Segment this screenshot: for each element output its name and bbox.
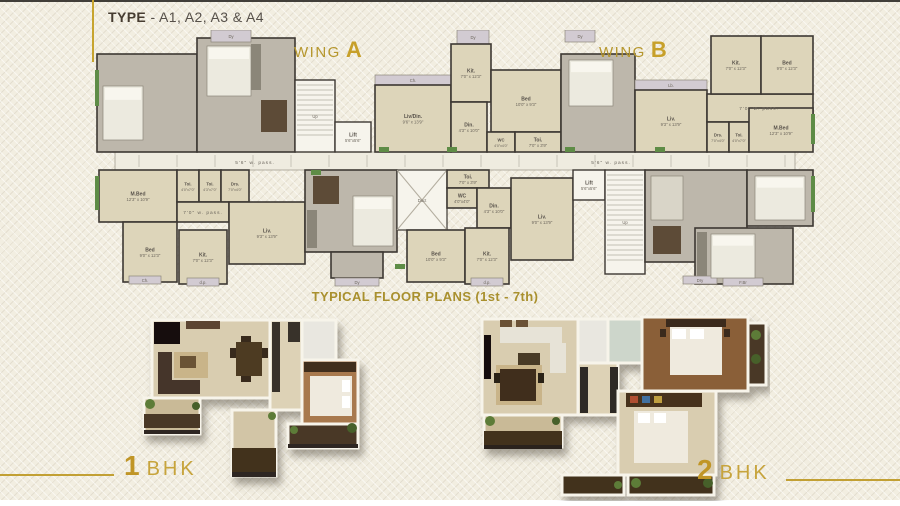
unit-2bhk-text: BHK [720,462,770,485]
shelf-box-icon [630,396,638,403]
room-label: 7'0" x 12'3" [477,257,498,262]
room-label: 5'6"x5'6" [345,138,361,143]
side-table-icon [660,329,666,337]
passage-label: 7'0" w. pass. [739,106,779,112]
room-label: Dy [577,34,583,39]
master-bedroom [642,317,748,391]
room-planter [311,170,321,175]
floor-plan-caption: TYPICAL FLOOR PLANS (1st - 7th) [255,289,595,304]
room-label: Duct [418,198,427,203]
room-planter [447,147,457,152]
room-label: Dy [470,35,476,40]
dining-table-icon [236,342,262,376]
wall-frame-icon [500,320,512,328]
bathroom [302,320,336,360]
deck-icon [144,414,200,428]
room-label: 7'0" x 12'3" [726,66,747,71]
pillow-icon [690,329,704,339]
coffee-table-icon [180,356,196,368]
passage-label: 5'6" w. pass. [235,160,275,166]
balcony-bottom-center [562,475,624,495]
room-label: 9'0" x 12'3" [140,253,161,258]
balcony-right [748,323,766,385]
unit-label-1bhk: 1 BHK [124,450,197,482]
counter-icon [272,322,280,392]
shelf-box-icon [654,396,662,403]
room-label: 7'0"x4'0" [228,188,242,192]
room-unit-furnished-a2 [331,252,383,278]
wing-a-prefix: WING [294,44,341,61]
pillow-icon [571,62,611,72]
plant-icon [192,402,200,410]
tv-panel-icon [484,335,491,379]
living-dining-room [152,320,270,398]
room-label: F.Br [739,280,747,285]
balcony-bottom-left [484,415,562,449]
passage-label: 7'0" w. pass. [183,210,223,216]
room-label: 9'3" x 13'9" [661,122,682,127]
wing-b-label: WING B [599,37,667,63]
room-label: 4'0"x7'0" [181,188,195,192]
wing-b-letter: B [651,37,667,63]
passage-label: 5'6" w. pass. [591,160,631,166]
room-label: Dry [697,278,704,283]
unit-label-2bhk: 2 BHK [697,454,770,486]
room-label: Up [622,220,628,225]
room-label: 7'0" x 3'9" [459,180,478,185]
room-planter [565,147,575,152]
sofa-icon [550,343,566,373]
pillow-icon [355,198,391,209]
room-label: 10'0" x 9'3" [426,257,447,262]
unit-2bhk-number: 2 [697,454,713,486]
room-label: 7'0" x 12'3" [461,74,482,79]
room-planter [379,147,389,152]
plant-icon [347,423,357,433]
room-table-icon [261,100,287,132]
room-label: Dy [228,34,234,39]
bathroom [578,319,642,363]
pillow-icon [342,396,350,408]
plan-type-rest: - A1, A2, A3 & A4 [150,9,263,25]
room-planter [95,176,99,210]
pillow-icon [654,413,666,423]
room-sofa-icon [651,176,683,220]
balcony-right [288,423,358,448]
wardrobe-icon [304,362,356,372]
room-label: d.p. [200,280,207,285]
brochure-page: TYPE - A1, A2, A3 & A4 WING A WING B DyU… [0,0,900,500]
utility-balcony [232,410,276,477]
railing-icon [288,444,358,448]
room-label: 4'0"x7'0" [732,139,746,143]
unit-1bhk-number: 1 [124,450,140,482]
pillow-icon [672,329,686,339]
room-label: 4'0"x4'0" [454,199,470,204]
room-label: Lb. [668,83,674,88]
deck-icon [484,431,562,445]
wall-frame-icon [516,320,528,328]
shower-room [608,319,642,363]
gold-accent-bar [92,0,94,62]
plant-icon [614,481,622,489]
room-label: 4'3" x 10'0" [459,128,480,133]
wing-a-letter: A [346,37,362,63]
pillow-icon [209,48,249,59]
plant-icon [290,426,298,434]
plant-icon [552,417,560,425]
room-label: 10'0" x 9'3" [516,102,537,107]
pillow-icon [757,178,803,188]
room-label: Ch. [410,78,417,83]
room-label: Dy [354,280,360,285]
room-label: Up [312,114,318,119]
plant-icon [751,354,761,364]
room-planter [655,147,665,152]
kitchen [270,320,302,410]
balcony-left [144,398,200,434]
chair-icon [230,348,236,358]
room-label: Toi. [206,182,213,187]
room-label: Ch. [142,278,149,283]
room-planter [395,264,405,269]
plant-icon [268,412,276,420]
plant-icon [751,330,761,340]
room-label: 4'0"x4'0" [494,144,508,148]
sofa-icon [158,380,200,394]
plant-icon [145,399,155,409]
railing-icon [232,472,276,477]
plan-type-bold: TYPE [108,9,146,25]
top-border-line [0,0,900,2]
room-label: 9'0" x 13'9" [532,220,553,225]
chair-icon [241,336,251,342]
pillow-icon [105,88,141,100]
plant-icon [485,416,495,426]
room-label: 9'0" x 12'3" [777,66,798,71]
tv-panel-icon [154,322,180,344]
room-label: 7'0"x4'0" [711,139,725,143]
room-label: 12'3" x 10'9" [127,197,150,202]
unit-1bhk-text: BHK [147,458,197,481]
room-label: Toi. [735,133,742,138]
room-label: Drs. [231,182,239,187]
room-label: 9'6" x 13'9" [403,119,424,124]
room-table-icon [653,226,681,254]
counter-icon [580,367,588,413]
railing-icon [144,430,200,434]
room-label: d.p. [484,280,491,285]
room-label: 7'0" x 12'3" [193,258,214,263]
pillow-icon [713,236,753,246]
room-label: 5'6"x5'6" [581,186,597,191]
pillow-icon [638,413,650,423]
chair-icon [262,348,268,358]
coffee-table-icon [518,353,540,367]
typical-floor-plan: DyUpLift5'6"x5'6"Ch.Liv/Din.9'6" x 13'9"… [95,30,815,288]
leader-line-2bhk [786,479,900,481]
room-planter [811,176,815,212]
plan-type-title: TYPE - A1, A2, A3 & A4 [108,9,264,25]
railing-icon [484,445,562,449]
room-label: Toi. [184,182,191,187]
floor-plan-svg: DyUpLift5'6"x5'6"Ch.Liv/Din.9'6" x 13'9"… [95,30,815,288]
room-counter-icon [307,210,317,248]
room-table-icon [313,176,339,204]
dining-table-icon [500,369,536,401]
room-counter-icon [697,232,707,276]
room-planter [95,70,99,106]
chair-icon [241,376,251,382]
wing-a-label: WING A [294,37,362,63]
chair-icon [494,373,500,383]
room-label: 4'3" x 10'0" [484,209,505,214]
room-label: 12'3" x 10'9" [770,131,793,136]
room-label: 7'0" x 3'9" [529,143,548,148]
room-central-passage [115,152,795,170]
room-label: 9'3" x 13'9" [257,234,278,239]
room-planter [811,114,815,144]
chair-icon [538,373,544,383]
plant-icon [631,478,641,488]
deck-icon [232,448,276,472]
room-label: 4'3"x7'0" [203,188,217,192]
sideboard-icon [186,321,220,329]
room-label: WC [498,138,505,143]
fridge-icon [288,322,300,342]
shelf-box-icon [642,396,650,403]
living-dining-room [482,319,578,415]
pillow-icon [342,380,350,392]
room-counter-icon [251,44,261,90]
headboard-icon [666,319,726,327]
room-label: Drs. [714,133,722,138]
bedroom [302,360,358,424]
sofa-icon [500,327,562,343]
leader-line-1bhk [0,474,114,476]
wing-b-prefix: WING [599,44,646,61]
side-table-icon [724,329,730,337]
